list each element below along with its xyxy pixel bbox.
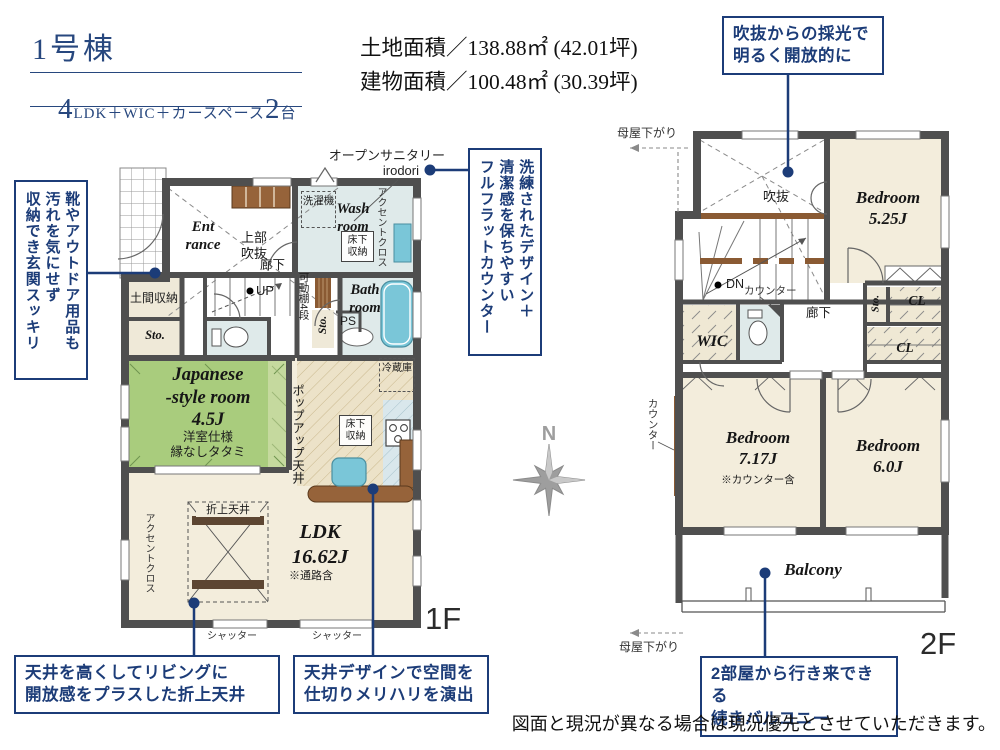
room-bedroom-60: Bedroom 6.0J — [842, 436, 934, 477]
moyasagari-bottom-label: 母屋下がり — [619, 640, 679, 654]
callout-flat-counter-col1: 洗練されたデザイン＋ — [516, 159, 535, 345]
callout-flat-counter: 洗練されたデザイン＋ 清潔感を保ちやすい フルフラットカウンター — [468, 148, 542, 356]
hallway-1f-label: 廊下 — [260, 258, 285, 273]
callout-entrance-storage-col3: 収納でき玄関スッキリ — [22, 191, 41, 369]
room-cl-2: CL — [890, 340, 920, 356]
building-title: 1号棟 — [32, 32, 116, 68]
dn-label: DN — [726, 277, 744, 292]
disclaimer-text: 図面と現況が異なる場合は現況優先とさせていただきます。 — [440, 714, 996, 736]
fridge-label: 冷蔵庫 — [379, 358, 415, 392]
underfloor-storage-kitchen: 床下 収納 — [339, 415, 372, 446]
callout-entrance-storage-col2: 汚れを気にせず — [42, 191, 61, 369]
ldk-note: ※通路含 — [289, 570, 333, 583]
callout-void-light: 吹抜からの採光で 明るく開放的に — [722, 16, 884, 75]
room-ldk: LDK 16.62J — [280, 520, 360, 570]
room-bedroom-717: Bedroom 7.17J — [716, 428, 800, 469]
shutter-label-1: シャッター — [207, 631, 257, 643]
building-area: 建物面積／100.48㎡ (30.39坪) — [360, 70, 638, 96]
upper-void-label: 上部 吹抜 — [233, 230, 275, 261]
land-area: 土地面積／138.88㎡ (42.01坪) — [360, 36, 638, 62]
spec-num-cars: 2 — [265, 93, 281, 125]
room-cl-1: CL — [902, 293, 932, 309]
room-wic: WIC — [692, 332, 732, 352]
callout-entrance-storage: 靴やアウトドア用品も 汚れを気にせず 収納でき玄関スッキリ — [14, 180, 88, 380]
counter-top-label: カウンター — [744, 285, 797, 298]
callout-folded-ceiling: 天井を高くしてリビングに 開放感をプラスした折上天井 — [14, 655, 280, 714]
floorplan-flyer: N 1号棟 4LDK＋WIC＋カースペース2台 土地面積／138.88㎡ (42… — [0, 0, 1000, 750]
room-sto-left: Sto. — [138, 328, 172, 343]
callout-ceiling-design: 天井デザインで空間を 仕切りメリハリを演出 — [293, 655, 489, 714]
callout-flat-counter-col2: 清潔感を保ちやすい — [496, 159, 515, 345]
room-bedroom-525: Bedroom 5.25J — [842, 188, 934, 229]
folded-ceiling-label: 折上天井 — [196, 504, 260, 517]
room-bath: Bath room — [342, 282, 388, 317]
irodori-label: irodori — [295, 163, 419, 179]
up-label: UP — [256, 283, 274, 299]
movable-shelf-label: 可動棚4段 — [297, 272, 310, 342]
hallway-2f-label: 廊下 — [806, 306, 831, 321]
spec-rooms-text: LDK＋WIC＋カースペース — [74, 106, 265, 122]
shutter-label-2: シャッター — [312, 631, 362, 643]
void-2f-label: 吹抜 — [763, 189, 789, 205]
layout-spec: 4LDK＋WIC＋カースペース2台 — [58, 74, 296, 127]
room-sto-2f: Sto. — [869, 289, 882, 319]
room-japanese: Japanese -style room 4.5J — [138, 364, 278, 432]
balcony-label: Balcony — [778, 560, 848, 581]
doma-storage-label: 土間収納 — [126, 291, 182, 305]
accent-cloth-wash: アクセントクロス — [374, 187, 386, 279]
room-sto-mid: Sto. — [316, 310, 330, 340]
popup-ceiling-label: ポップアップ天井 — [289, 384, 304, 492]
floor-label-1f: 1F — [425, 600, 461, 637]
japanese-note: 洋室仕様 縁なしタタミ — [152, 430, 264, 460]
spec-num-rooms: 4 — [58, 93, 74, 125]
accent-cloth-ldk: アクセントクロス — [142, 513, 154, 605]
room-entrance: Ent rance — [172, 218, 234, 255]
compass-north-label: N — [542, 423, 556, 445]
floor-label-2f: 2F — [920, 625, 956, 662]
spec-cars-unit: 台 — [280, 106, 296, 122]
underfloor-storage-wash: 床下 収納 — [341, 231, 374, 262]
open-sanitary-label: オープンサニタリー — [295, 148, 445, 164]
callout-entrance-storage-col1: 靴やアウトドア用品も — [62, 191, 81, 369]
moyasagari-top-label: 母屋下がり — [617, 126, 677, 140]
title-divider-top — [30, 72, 302, 73]
title-divider-bottom — [30, 106, 302, 107]
counter-left-label: カウンター — [646, 398, 659, 482]
callout-flat-counter-col3: フルフラットカウンター — [476, 159, 495, 345]
bedroom-717-note: ※カウンター含 — [714, 474, 802, 487]
compass-rose: N — [513, 423, 585, 516]
